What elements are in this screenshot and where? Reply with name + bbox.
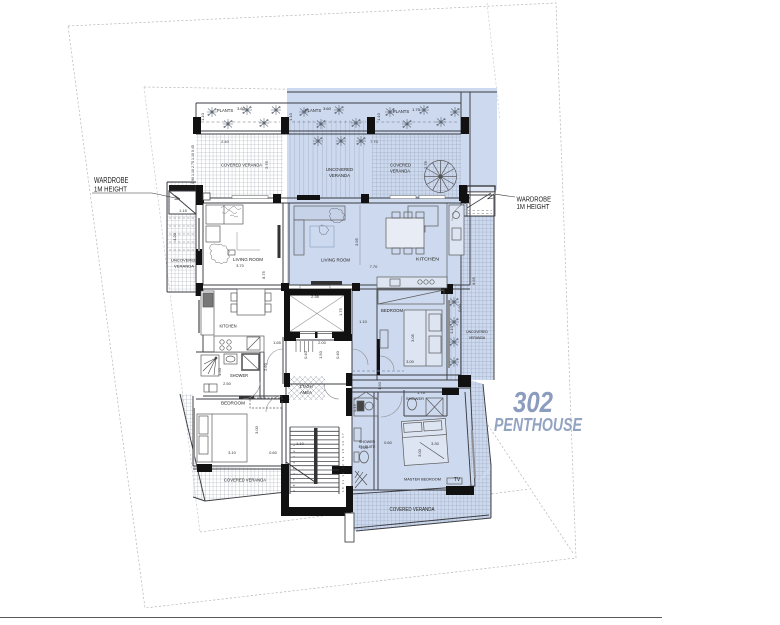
svg-text:3.30: 3.30 xyxy=(431,441,440,446)
svg-text:LIVING ROOM: LIVING ROOM xyxy=(321,258,350,263)
svg-text:0.15: 0.15 xyxy=(352,403,357,412)
svg-text:COVERED: COVERED xyxy=(390,163,412,168)
svg-text:1.10: 1.10 xyxy=(296,441,305,446)
svg-text:8.75: 8.75 xyxy=(261,270,266,279)
svg-text:1.10: 1.10 xyxy=(376,112,381,121)
svg-text:1.15: 1.15 xyxy=(179,208,188,213)
svg-text:2.50: 2.50 xyxy=(223,381,232,386)
svg-text:3.95: 3.95 xyxy=(354,237,359,246)
svg-text:1.10: 1.10 xyxy=(288,112,293,121)
svg-text:7.70: 7.70 xyxy=(370,139,379,144)
svg-text:3.00: 3.00 xyxy=(254,425,259,434)
svg-text:BEDROOM: BEDROOM xyxy=(221,401,245,406)
svg-text:1M HEIGHT: 1M HEIGHT xyxy=(94,187,128,194)
svg-text:3.10: 3.10 xyxy=(228,450,237,455)
svg-text:UNCOVERED: UNCOVERED xyxy=(326,167,354,172)
svg-text:COVERED VERANDA: COVERED VERANDA xyxy=(224,478,267,483)
svg-text:VERANDA: VERANDA xyxy=(390,169,411,174)
svg-text:3.60: 3.60 xyxy=(237,106,246,111)
svg-text:VERANDA: VERANDA xyxy=(469,336,486,340)
svg-text:3.60: 3.60 xyxy=(323,106,332,111)
svg-text:1.10: 1.10 xyxy=(200,112,205,121)
svg-text:COVERED VERANDA: COVERED VERANDA xyxy=(390,507,436,513)
svg-text:0.60: 0.60 xyxy=(384,440,393,445)
svg-text:3.00: 3.00 xyxy=(406,359,415,364)
svg-text:2.40: 2.40 xyxy=(221,139,230,144)
svg-text:VERANDA: VERANDA xyxy=(329,173,351,178)
svg-text:4.20: 4.20 xyxy=(172,232,177,241)
svg-text:SHOWER: SHOWER xyxy=(406,396,424,401)
svg-text:2.60: 2.60 xyxy=(263,362,268,371)
svg-text:ΑΜΕΑ: ΑΜΕΑ xyxy=(300,390,312,395)
svg-text:0.90 1.10 2.75 1.10 0.45: 0.90 1.10 2.75 1.10 0.45 xyxy=(191,145,195,184)
svg-text:TV: TV xyxy=(454,477,461,483)
svg-text:2.00: 2.00 xyxy=(318,340,327,345)
svg-text:MASTER BEDROOM: MASTER BEDROOM xyxy=(404,478,441,482)
svg-text:1.75: 1.75 xyxy=(338,307,343,316)
svg-text:10 11 12 13 14 15 16 17: 10 11 12 13 14 15 16 17 xyxy=(341,432,345,492)
svg-text:UNCOVERED: UNCOVERED xyxy=(171,259,197,263)
svg-text:3.05: 3.05 xyxy=(410,333,415,342)
svg-text:COVERED VERANDA: COVERED VERANDA xyxy=(221,163,263,168)
svg-text:1M HEIGHT: 1M HEIGHT xyxy=(517,204,551,211)
svg-text:PLANTS: PLANTS xyxy=(305,108,321,113)
svg-text:KITCHEN: KITCHEN xyxy=(220,324,237,329)
svg-text:1.50: 1.50 xyxy=(217,367,222,376)
svg-text:7.70: 7.70 xyxy=(370,264,379,269)
svg-text:1.76: 1.76 xyxy=(417,390,426,395)
svg-text:1.20: 1.20 xyxy=(360,445,369,450)
svg-text:1.75: 1.75 xyxy=(412,107,421,112)
svg-text:1.10: 1.10 xyxy=(359,319,368,324)
svg-text:WARDROBE: WARDROBE xyxy=(517,196,552,203)
svg-text:LIVING ROOM: LIVING ROOM xyxy=(233,257,263,262)
svg-text:UNCOVERED: UNCOVERED xyxy=(466,330,488,334)
svg-text:ΣΤΑΣΗ: ΣΤΑΣΗ xyxy=(299,384,312,389)
svg-text:SHOWER: SHOWER xyxy=(230,373,249,378)
svg-text:PENTHOUSE: PENTHOUSE xyxy=(494,414,582,435)
svg-text:0.40: 0.40 xyxy=(303,350,308,359)
svg-text:WARDROBE: WARDROBE xyxy=(94,176,129,185)
svg-text:0.40: 0.40 xyxy=(335,350,340,359)
svg-text:PLANTS: PLANTS xyxy=(217,108,233,113)
svg-text:1.50: 1.50 xyxy=(318,350,323,359)
svg-text:2.75: 2.75 xyxy=(423,160,428,169)
svg-text:BEDROOM: BEDROOM xyxy=(381,308,403,313)
svg-text:PLANTS: PLANTS xyxy=(393,109,409,114)
svg-text:1.65: 1.65 xyxy=(273,340,282,345)
svg-text:2.75: 2.75 xyxy=(264,160,269,169)
svg-text:SHOWER: SHOWER xyxy=(359,440,376,444)
svg-text:3.00: 3.00 xyxy=(417,448,422,457)
svg-text:1.50: 1.50 xyxy=(377,381,382,390)
svg-text:0.60: 0.60 xyxy=(457,303,462,312)
svg-text:8.65: 8.65 xyxy=(471,276,476,285)
svg-text:KITCHEN: KITCHEN xyxy=(416,257,439,262)
svg-text:VERANDA: VERANDA xyxy=(174,265,195,269)
svg-text:9 8 7 6 5 4 3 2 1: 9 8 7 6 5 4 3 2 1 xyxy=(292,443,296,492)
svg-text:0.60: 0.60 xyxy=(269,450,278,455)
svg-text:2.35: 2.35 xyxy=(311,294,320,299)
svg-text:3.70: 3.70 xyxy=(236,263,245,268)
svg-text:1.10: 1.10 xyxy=(449,325,454,334)
